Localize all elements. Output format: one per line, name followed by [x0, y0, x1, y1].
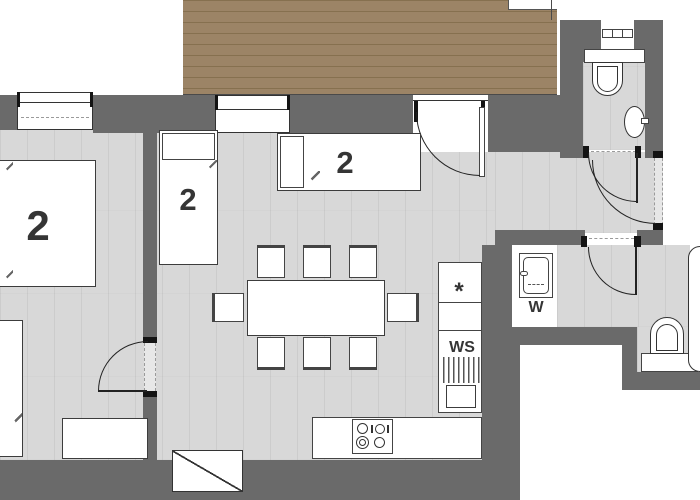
dining-table — [247, 280, 385, 336]
chair-bottom-1 — [257, 337, 285, 370]
washing-machine-handle — [520, 271, 528, 276]
wall-bath-upper-left-side — [560, 62, 583, 158]
bath-upper-counter — [584, 49, 645, 63]
window-bathroom-divider-a — [612, 29, 613, 38]
window-left-post-b — [90, 92, 93, 107]
washer-label: W — [526, 300, 546, 316]
burner-bracket-left — [371, 425, 373, 433]
bathtub — [688, 246, 700, 372]
kitchen-counter-bottom — [312, 417, 482, 459]
lobby-door-stop-a — [581, 236, 587, 247]
chair-top-1 — [257, 245, 285, 278]
wardrobe-diagonal-box — [172, 450, 243, 492]
window-left-post-a — [17, 92, 20, 107]
toilet-upper-bowl — [597, 66, 618, 92]
burner-bottom-right — [374, 437, 385, 448]
wall-top-left-a — [0, 95, 17, 130]
washing-machine-dash — [528, 284, 544, 286]
chair-left — [212, 293, 244, 322]
wall-bath-lower-bottom — [622, 372, 700, 390]
deck-edge-line — [551, 0, 552, 20]
lobby-door-stop-b — [634, 236, 641, 247]
chair-right — [387, 293, 419, 322]
window-left — [17, 92, 93, 130]
sink-upper-tap — [641, 118, 649, 124]
wall-bedroom-divider-upper — [143, 128, 157, 343]
kitchen-column-divider-b — [438, 330, 482, 331]
wood-deck-terrace — [183, 0, 557, 95]
single-bed-middle-pillow — [162, 133, 215, 160]
window-mid-post-b — [287, 95, 290, 110]
wall-hall-band-left — [495, 230, 585, 245]
entry-door-stop-a — [653, 151, 663, 158]
chair-bottom-2 — [303, 337, 331, 370]
entry-door-stop-b — [653, 223, 663, 230]
kitchen-sink-basin — [446, 385, 476, 408]
wall-kitchen-right — [482, 245, 495, 333]
window-mid-post-a — [215, 95, 218, 110]
burner-top-right — [375, 424, 385, 434]
floor-plan: 2 2 2 * WS W — [0, 0, 700, 500]
kitchen-sink-label: WS — [443, 340, 481, 356]
wall-top-right-of-door — [488, 95, 560, 152]
deck-corner-trim — [508, 0, 557, 10]
window-left-bar — [19, 102, 91, 103]
wall-bottom-main — [0, 460, 520, 500]
single-bed-top-label: 2 — [329, 147, 361, 178]
wall-niche-left — [495, 245, 512, 327]
double-bed-label: 2 — [18, 205, 58, 247]
deck-door-frame-line — [413, 100, 488, 101]
single-bed-bottom-left — [0, 320, 23, 457]
chair-top-3 — [349, 245, 377, 278]
chair-bottom-3 — [349, 337, 377, 370]
window-bathroom-divider-b — [622, 29, 623, 38]
burner-bottom-left-inner — [359, 439, 366, 446]
dresser — [62, 418, 148, 459]
lobby-door-dash — [589, 238, 634, 240]
window-left-sill-dash — [21, 117, 89, 119]
toilet-lower-bowl — [656, 324, 678, 351]
window-bathroom-panes — [602, 29, 633, 38]
window-mid — [215, 95, 290, 133]
chair-top-2 — [303, 245, 331, 278]
burner-bracket-right — [387, 425, 389, 433]
single-bed-middle-label: 2 — [170, 184, 206, 215]
burner-top-left — [357, 423, 368, 434]
single-bed-top-pillow — [280, 136, 304, 188]
wall-top-mid — [290, 95, 390, 133]
fridge-symbol: * — [448, 280, 470, 304]
kitchen-drainer-hatch — [443, 357, 480, 383]
window-mid-bar — [217, 109, 288, 110]
wall-bath-upper-right-side — [645, 62, 663, 158]
wall-block-bottom-center — [482, 333, 520, 460]
